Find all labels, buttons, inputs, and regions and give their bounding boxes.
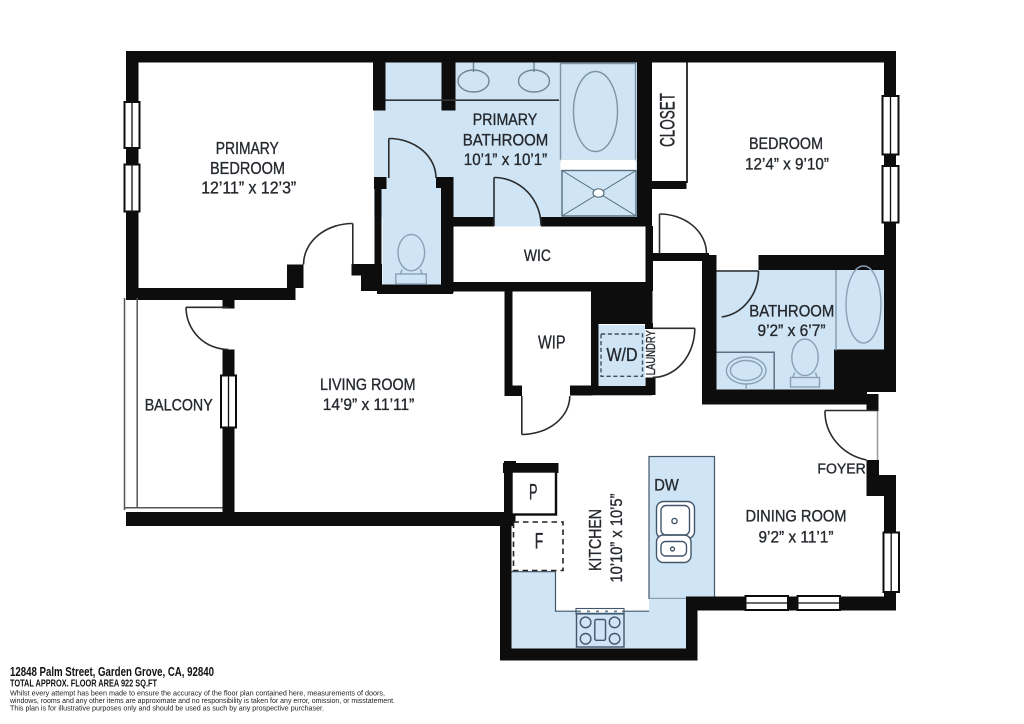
svg-text:LAUNDRY: LAUNDRY [644, 330, 658, 375]
svg-text:WIC: WIC [524, 246, 551, 265]
svg-text:BATHROOM: BATHROOM [749, 302, 834, 321]
svg-text:F: F [535, 529, 544, 554]
svg-text:This plan is for illustrative: This plan is for illustrative purposes o… [10, 704, 324, 713]
svg-text:KITCHEN: KITCHEN [585, 509, 605, 571]
svg-text:P: P [529, 480, 538, 505]
svg-text:10’1” x 10’1”: 10’1” x 10’1” [464, 150, 548, 169]
svg-text:10’10” x 10’5”: 10’10” x 10’5” [607, 493, 626, 582]
svg-text:W/D: W/D [607, 345, 638, 365]
svg-text:BATHROOM: BATHROOM [463, 131, 549, 150]
svg-text:12848 Palm Street, Garden Grov: 12848 Palm Street, Garden Grove, CA, 928… [10, 664, 214, 679]
svg-text:14’9” x 11’11”: 14’9” x 11’11” [323, 395, 415, 414]
svg-text:DW: DW [654, 476, 679, 495]
svg-text:9’2” x 11’1”: 9’2” x 11’1” [759, 528, 834, 547]
svg-text:LIVING ROOM: LIVING ROOM [320, 375, 416, 394]
svg-text:BEDROOM: BEDROOM [210, 158, 285, 178]
svg-text:12’11” x 12’3”: 12’11” x 12’3” [201, 178, 296, 198]
svg-text:12’4” x 9’10”: 12’4” x 9’10” [745, 156, 829, 174]
svg-text:DINING ROOM: DINING ROOM [746, 507, 847, 526]
svg-text:BALCONY: BALCONY [145, 396, 213, 415]
svg-text:WIP: WIP [538, 333, 566, 353]
svg-text:PRIMARY: PRIMARY [216, 138, 279, 158]
svg-text:9’2” x 6’7”: 9’2” x 6’7” [758, 321, 826, 340]
svg-text:FOYER: FOYER [817, 461, 866, 478]
svg-text:BEDROOM: BEDROOM [749, 134, 823, 153]
svg-text:CLOSET: CLOSET [657, 93, 680, 147]
svg-text:PRIMARY: PRIMARY [473, 110, 538, 129]
